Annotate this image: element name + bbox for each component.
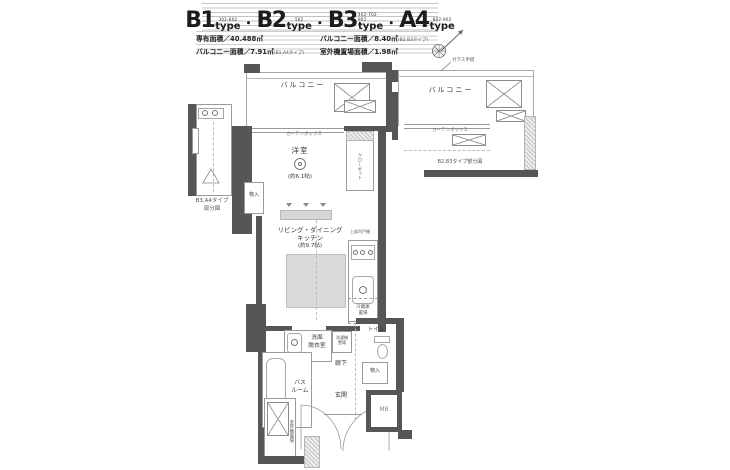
hallway-label: 廊下 <box>328 360 354 368</box>
washroom-label: 洗面 脱衣室 <box>302 335 332 350</box>
wall <box>398 430 412 439</box>
area-specs: 専有面積／40.488㎡ バルコニー面積／8.40㎡(B2,B3タイプ) バルコ… <box>196 31 438 57</box>
balcony-rail-line <box>246 78 392 79</box>
type-group-b1: B1 302-602type <box>185 10 240 32</box>
title-separator: ・ <box>385 15 397 32</box>
wall-hatch <box>524 116 536 170</box>
balcony-rail-line <box>398 76 534 77</box>
chair-icon <box>286 203 292 207</box>
door-swing-icon <box>202 168 220 184</box>
leader-line <box>440 61 452 72</box>
dash-line <box>316 220 317 320</box>
type-b1-label: B1 <box>185 10 214 32</box>
balcony-area-2: バルコニー面積／8.40㎡(B2,B3タイプ) <box>320 33 428 43</box>
curtain-box-label: カーテンボックス <box>420 128 480 134</box>
grating-hatch <box>304 436 320 468</box>
wall <box>396 318 404 392</box>
type-b3-label: B3 <box>328 10 357 32</box>
toilet-bowl-icon <box>377 344 388 359</box>
stove-icon <box>351 245 375 260</box>
meter-box-label: MB <box>366 406 402 414</box>
hatch-box-small <box>344 100 376 113</box>
bathroom-label: バス ルーム <box>288 380 312 395</box>
sub-balcony-label: バルコニー <box>408 86 494 95</box>
chair-icon <box>303 203 309 207</box>
glass-rail-label: ガラス手摺 <box>452 58 474 64</box>
type-group-b3: B3 402-702-902type <box>328 10 383 32</box>
compass-icon <box>428 26 468 60</box>
hatch-box <box>486 80 522 108</box>
western-room-size: (約6.1帖) <box>262 174 338 181</box>
left-partial-door <box>192 128 199 154</box>
wall <box>392 70 398 82</box>
exclusive-area: 専有面積／40.488㎡ <box>196 33 320 43</box>
balcony-area-1: バルコニー面積／7.91㎡(B1,A4タイプ) <box>196 46 320 56</box>
ceiling-light-icon <box>298 162 302 166</box>
closet-hatch <box>346 131 374 141</box>
chair-icon <box>320 203 326 207</box>
type-group-b2: B2 502type <box>257 10 312 32</box>
closet-label: クローゼット <box>356 144 362 188</box>
western-room-label: 洋室 <box>262 146 338 156</box>
type-a4-label: A4 <box>399 10 428 32</box>
outdoor-unit-area: 室外機置場面積／1.98㎡ <box>320 46 398 56</box>
burner-icon <box>202 110 208 116</box>
washbasin-drain-icon <box>291 339 298 346</box>
curtain-box-label: カーテンボックス <box>274 132 334 138</box>
entrance-label: 玄関 <box>326 392 356 400</box>
storage-label: 物入 <box>244 192 264 199</box>
dash-line <box>404 150 490 151</box>
wall <box>258 456 304 464</box>
wall <box>424 170 538 177</box>
hatch-box <box>267 402 289 436</box>
entry-storage-label: 物入 <box>362 368 388 375</box>
page-title: B1 302-602type ・ B2 502type ・ B3 402-702… <box>202 2 438 32</box>
wall <box>392 92 398 140</box>
toilet-label: トイレ <box>360 327 392 334</box>
spec-row-1: 専有面積／40.488㎡ バルコニー面積／8.40㎡(B2,B3タイプ) <box>196 31 438 44</box>
wall <box>362 62 392 72</box>
title-separator: ・ <box>314 15 326 32</box>
furniture-box <box>452 134 486 146</box>
spec-row-2: バルコニー面積／7.91㎡(B1,A4タイプ) 室外機置場面積／1.98㎡ <box>196 44 438 57</box>
upper-cabinet-label: 上部吊戸棚 <box>336 229 384 234</box>
toilet-tank-icon <box>374 336 390 343</box>
title-separator: ・ <box>243 15 255 32</box>
floorplan-page: B1 302-602type ・ B2 502type ・ B3 402-702… <box>0 0 730 470</box>
outdoor-unit-label: 室外機置場 <box>288 402 294 460</box>
fridge-label: 冷蔵庫 置場 <box>348 305 378 317</box>
right-partial-caption: B2,B3タイプ部分図 <box>424 159 496 166</box>
wall <box>244 64 260 73</box>
hatch-box-small <box>496 110 526 122</box>
burner-icon <box>212 110 218 116</box>
sink-drain-icon <box>359 286 367 294</box>
dining-table <box>280 210 332 220</box>
type-b2-label: B2 <box>257 10 286 32</box>
washer-label: 洗濯機 置場 <box>332 335 352 345</box>
